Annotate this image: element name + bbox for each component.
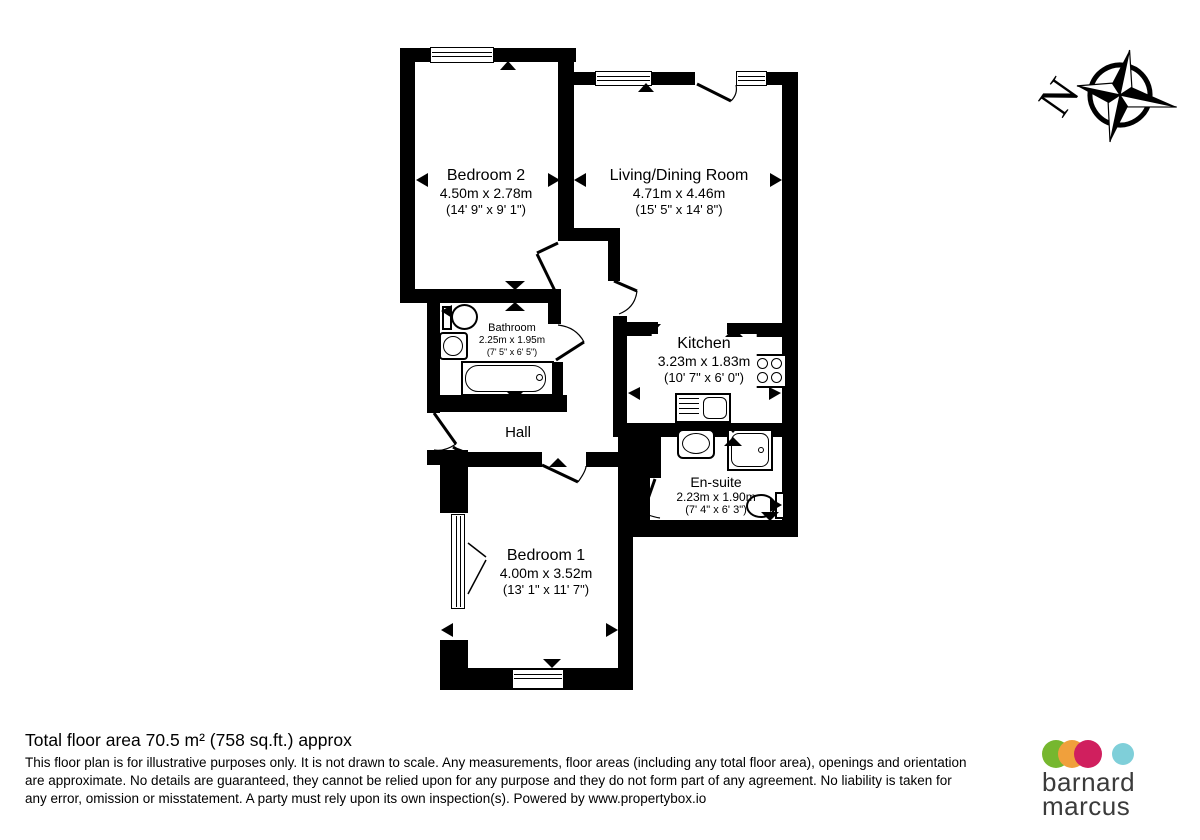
bathtub-inner (465, 365, 546, 392)
wall-bedroom2-bottom (400, 289, 550, 303)
wall-exterior-left (400, 48, 415, 303)
wall-entrance-jamb (427, 450, 440, 465)
wall-bedroom1-top-left (440, 452, 542, 467)
room-dims-metric: 4.71m x 4.46m (610, 185, 749, 202)
logo-dots (1042, 740, 1192, 768)
living-window-right (736, 71, 767, 86)
room-dims-imperial: (14' 9" x 9' 1") (440, 202, 533, 218)
north-label: N (1030, 69, 1089, 125)
room-dims-imperial: (7' 4" x 6' 3") (676, 504, 755, 517)
room-dims-metric: 3.23m x 1.83m (658, 353, 751, 370)
sink-drainer-line (679, 398, 699, 399)
barnard-marcus-logo: barnard marcus (1042, 740, 1192, 818)
floorplan-page: Bedroom 2 4.50m x 2.78m (14' 9" x 9' 1")… (0, 0, 1200, 840)
living-window-left (595, 71, 652, 86)
room-name: Bathroom (479, 322, 545, 335)
living-door-opening (695, 72, 736, 85)
sink-drainer-line (679, 408, 699, 409)
room-name: En-suite (676, 474, 755, 490)
wall-exterior-right (782, 72, 798, 537)
room-label-bedroom1: Bedroom 1 4.00m x 3.52m (13' 1" x 11' 7"… (500, 547, 593, 598)
bathtub-drain (536, 374, 543, 381)
room-label-ensuite: En-suite 2.23m x 1.90m (7' 4" x 6' 3") (676, 474, 755, 517)
room-name: Living/Dining Room (610, 167, 749, 185)
room-dims-metric: 2.23m x 1.90m (676, 490, 755, 504)
wall-ensuite-bottom (648, 520, 798, 537)
bathroom-toilet-bowl (451, 304, 478, 330)
room-dims-imperial: (13' 1" x 11' 7") (500, 582, 593, 598)
room-dims-metric: 4.50m x 2.78m (440, 185, 533, 202)
room-label-bathroom: Bathroom 2.25m x 1.95m (7' 5" x 6' 5") (479, 322, 545, 358)
room-name: Bedroom 1 (500, 547, 593, 565)
kitchen-sink-bowl (703, 397, 727, 419)
sink-drainer-line (679, 413, 699, 414)
doors-and-markers-layer (0, 0, 1200, 840)
footer: Total floor area 70.5 m² (758 sq.ft.) ap… (25, 729, 975, 808)
room-label-bedroom2: Bedroom 2 4.50m x 2.78m (14' 9" x 9' 1") (440, 167, 533, 218)
sink-drainer-line (679, 403, 699, 404)
hob-burner-3 (757, 372, 768, 383)
logo-dot-crimson (1074, 740, 1102, 768)
disclaimer-text: This floor plan is for illustrative purp… (25, 754, 975, 808)
hob-burner-2 (771, 358, 782, 369)
logo-line2: marcus (1042, 794, 1192, 818)
room-label-living-dining: Living/Dining Room 4.71m x 4.46m (15' 5"… (610, 167, 749, 218)
room-name: Hall (505, 424, 531, 442)
bathroom-basin-bowl (443, 336, 463, 356)
room-dims-metric: 4.00m x 3.52m (500, 565, 593, 582)
wall-bathroom-right-upper (548, 289, 561, 324)
room-dims-metric: 2.25m x 1.95m (479, 335, 545, 347)
room-name: Kitchen (658, 335, 751, 353)
bedroom1-window-bay (451, 514, 465, 609)
wall-corridor-top (558, 228, 620, 241)
wall-bedroom1-left-lower (440, 640, 468, 690)
wall-bed1-ensuite-chunk (618, 423, 650, 537)
room-dims-imperial: (15' 5" x 14' 8") (610, 202, 749, 218)
logo-wordmark: barnard marcus (1042, 770, 1192, 818)
room-dims-imperial: (10' 7" x 6' 0") (658, 370, 751, 386)
bedroom2-window (430, 47, 494, 63)
room-label-hall: Hall (505, 424, 531, 442)
compass-rose: N (1030, 35, 1190, 160)
room-dims-imperial: (7' 5" x 6' 5") (479, 347, 545, 358)
ensuite-shower-drain (758, 447, 764, 453)
ensuite-toilet-cistern (775, 492, 785, 519)
bedroom1-window-bottom (512, 669, 564, 689)
logo-dot-teal (1112, 743, 1134, 765)
total-floor-area: Total floor area 70.5 m² (758 sq.ft.) ap… (25, 729, 975, 752)
hob-burner-4 (771, 372, 782, 383)
ensuite-basin-bowl (682, 433, 710, 454)
hob-burner-1 (757, 358, 768, 369)
room-name: Bedroom 2 (440, 167, 533, 185)
wall-bathroom-bottom (427, 395, 567, 412)
room-label-kitchen: Kitchen 3.23m x 1.83m (10' 7" x 6' 0") (652, 334, 757, 389)
wall-corridor-right (608, 241, 620, 281)
